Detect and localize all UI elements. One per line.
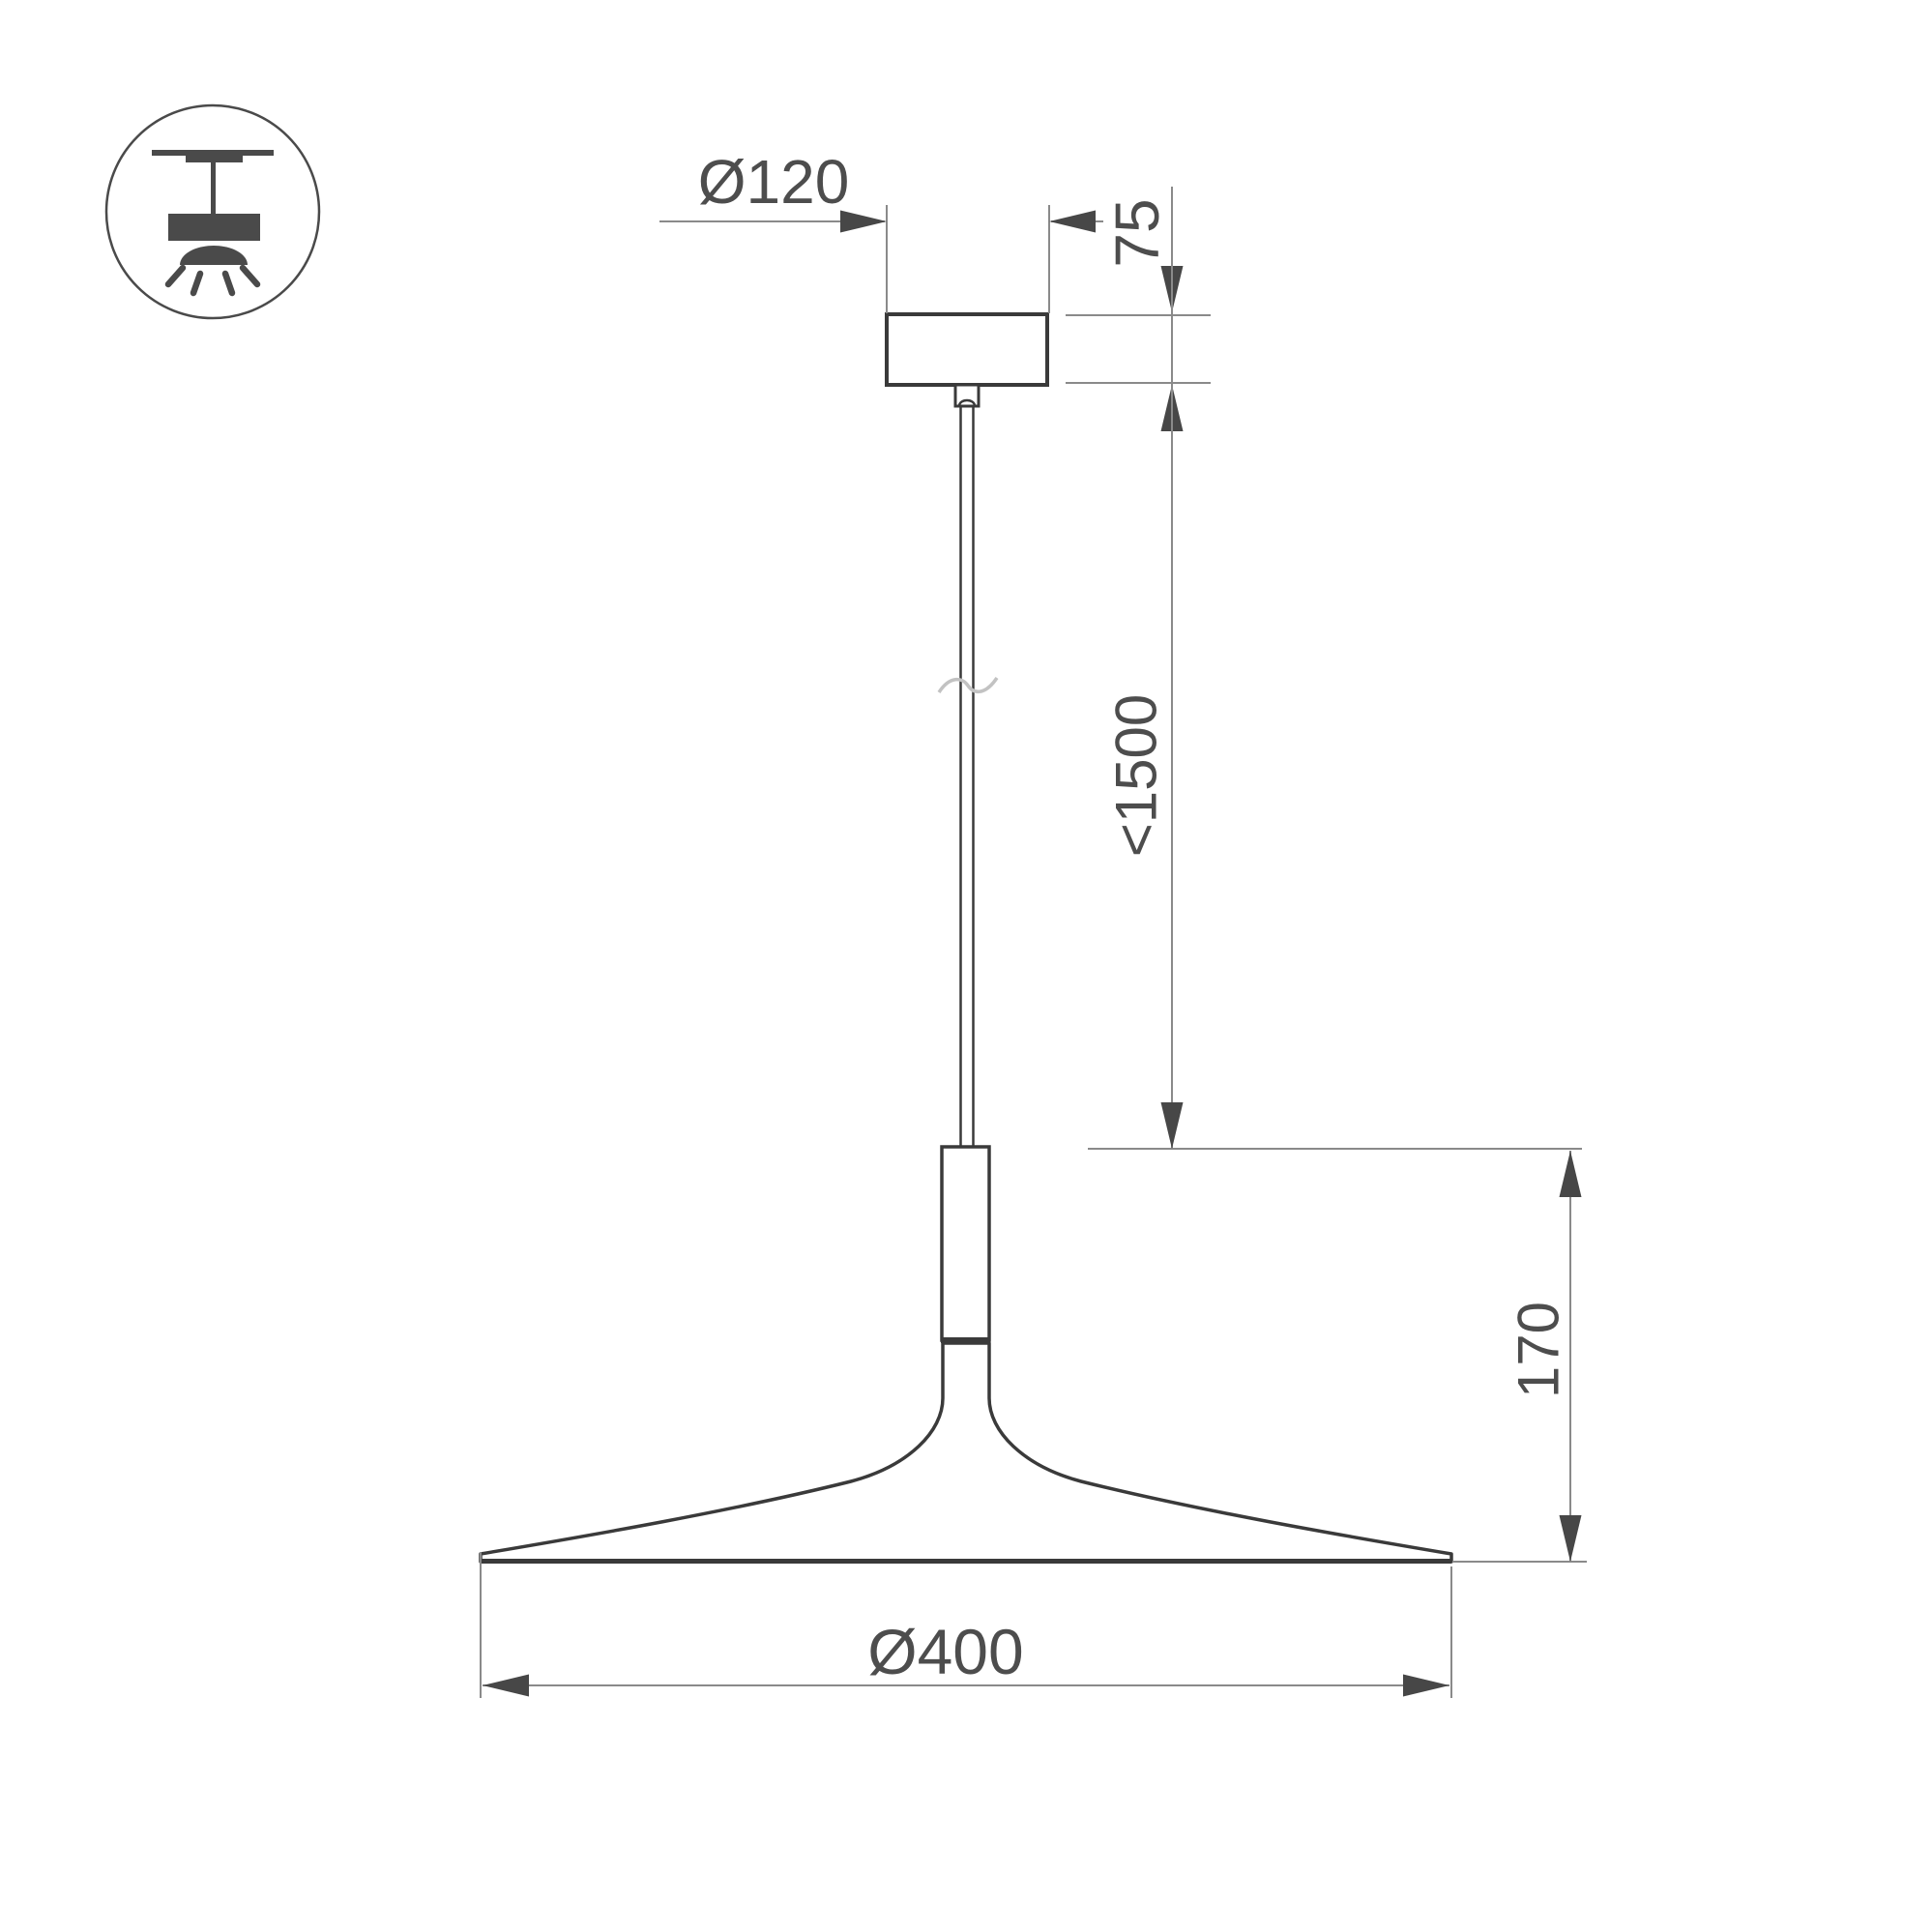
suspension-length-label: <1500 xyxy=(1104,694,1169,858)
canopy-diameter-label: Ø120 xyxy=(698,147,850,217)
dim-shade-diameter: Ø400 xyxy=(481,1552,1451,1698)
icon-suspension-rod xyxy=(211,162,216,216)
ceiling-pendant-mount-icon xyxy=(106,105,319,318)
dim-canopy-height: 75 xyxy=(1066,198,1211,431)
shade-diameter-label: Ø400 xyxy=(867,1616,1023,1687)
dim-shade-height: 170 xyxy=(1452,1151,1587,1562)
shade-profile xyxy=(481,1343,1451,1562)
icon-light-dome xyxy=(180,246,248,265)
canopy-height-label: 75 xyxy=(1102,198,1172,267)
arrowhead-left-icon xyxy=(1049,211,1096,233)
dim-suspension-length: <1500 xyxy=(1088,187,1582,1149)
arrowhead-right-icon xyxy=(1403,1675,1449,1697)
dim-canopy-diameter: Ø120 xyxy=(659,147,1103,313)
luminaire-outline xyxy=(481,314,1451,1562)
arrowhead-down-icon xyxy=(1560,1515,1582,1562)
arrowhead-down-icon xyxy=(1161,1102,1184,1149)
drawing-canvas: Ø120 75 <1500 170 Ø400 xyxy=(0,0,1932,1932)
cord-grip xyxy=(955,385,979,406)
arrowhead-up-icon xyxy=(1560,1151,1582,1197)
icon-mount-plate xyxy=(186,156,243,162)
shade-height-label: 170 xyxy=(1507,1302,1571,1398)
icon-light-rays xyxy=(168,268,257,293)
icon-lamp-body xyxy=(168,214,260,241)
technical-drawing: Ø120 75 <1500 170 Ø400 xyxy=(0,0,1932,1932)
stem-tube xyxy=(942,1147,989,1340)
arrowhead-left-icon xyxy=(483,1675,529,1697)
cable-break-symbol xyxy=(939,678,997,692)
canopy xyxy=(887,314,1047,385)
icon-ceiling-line xyxy=(152,150,274,156)
